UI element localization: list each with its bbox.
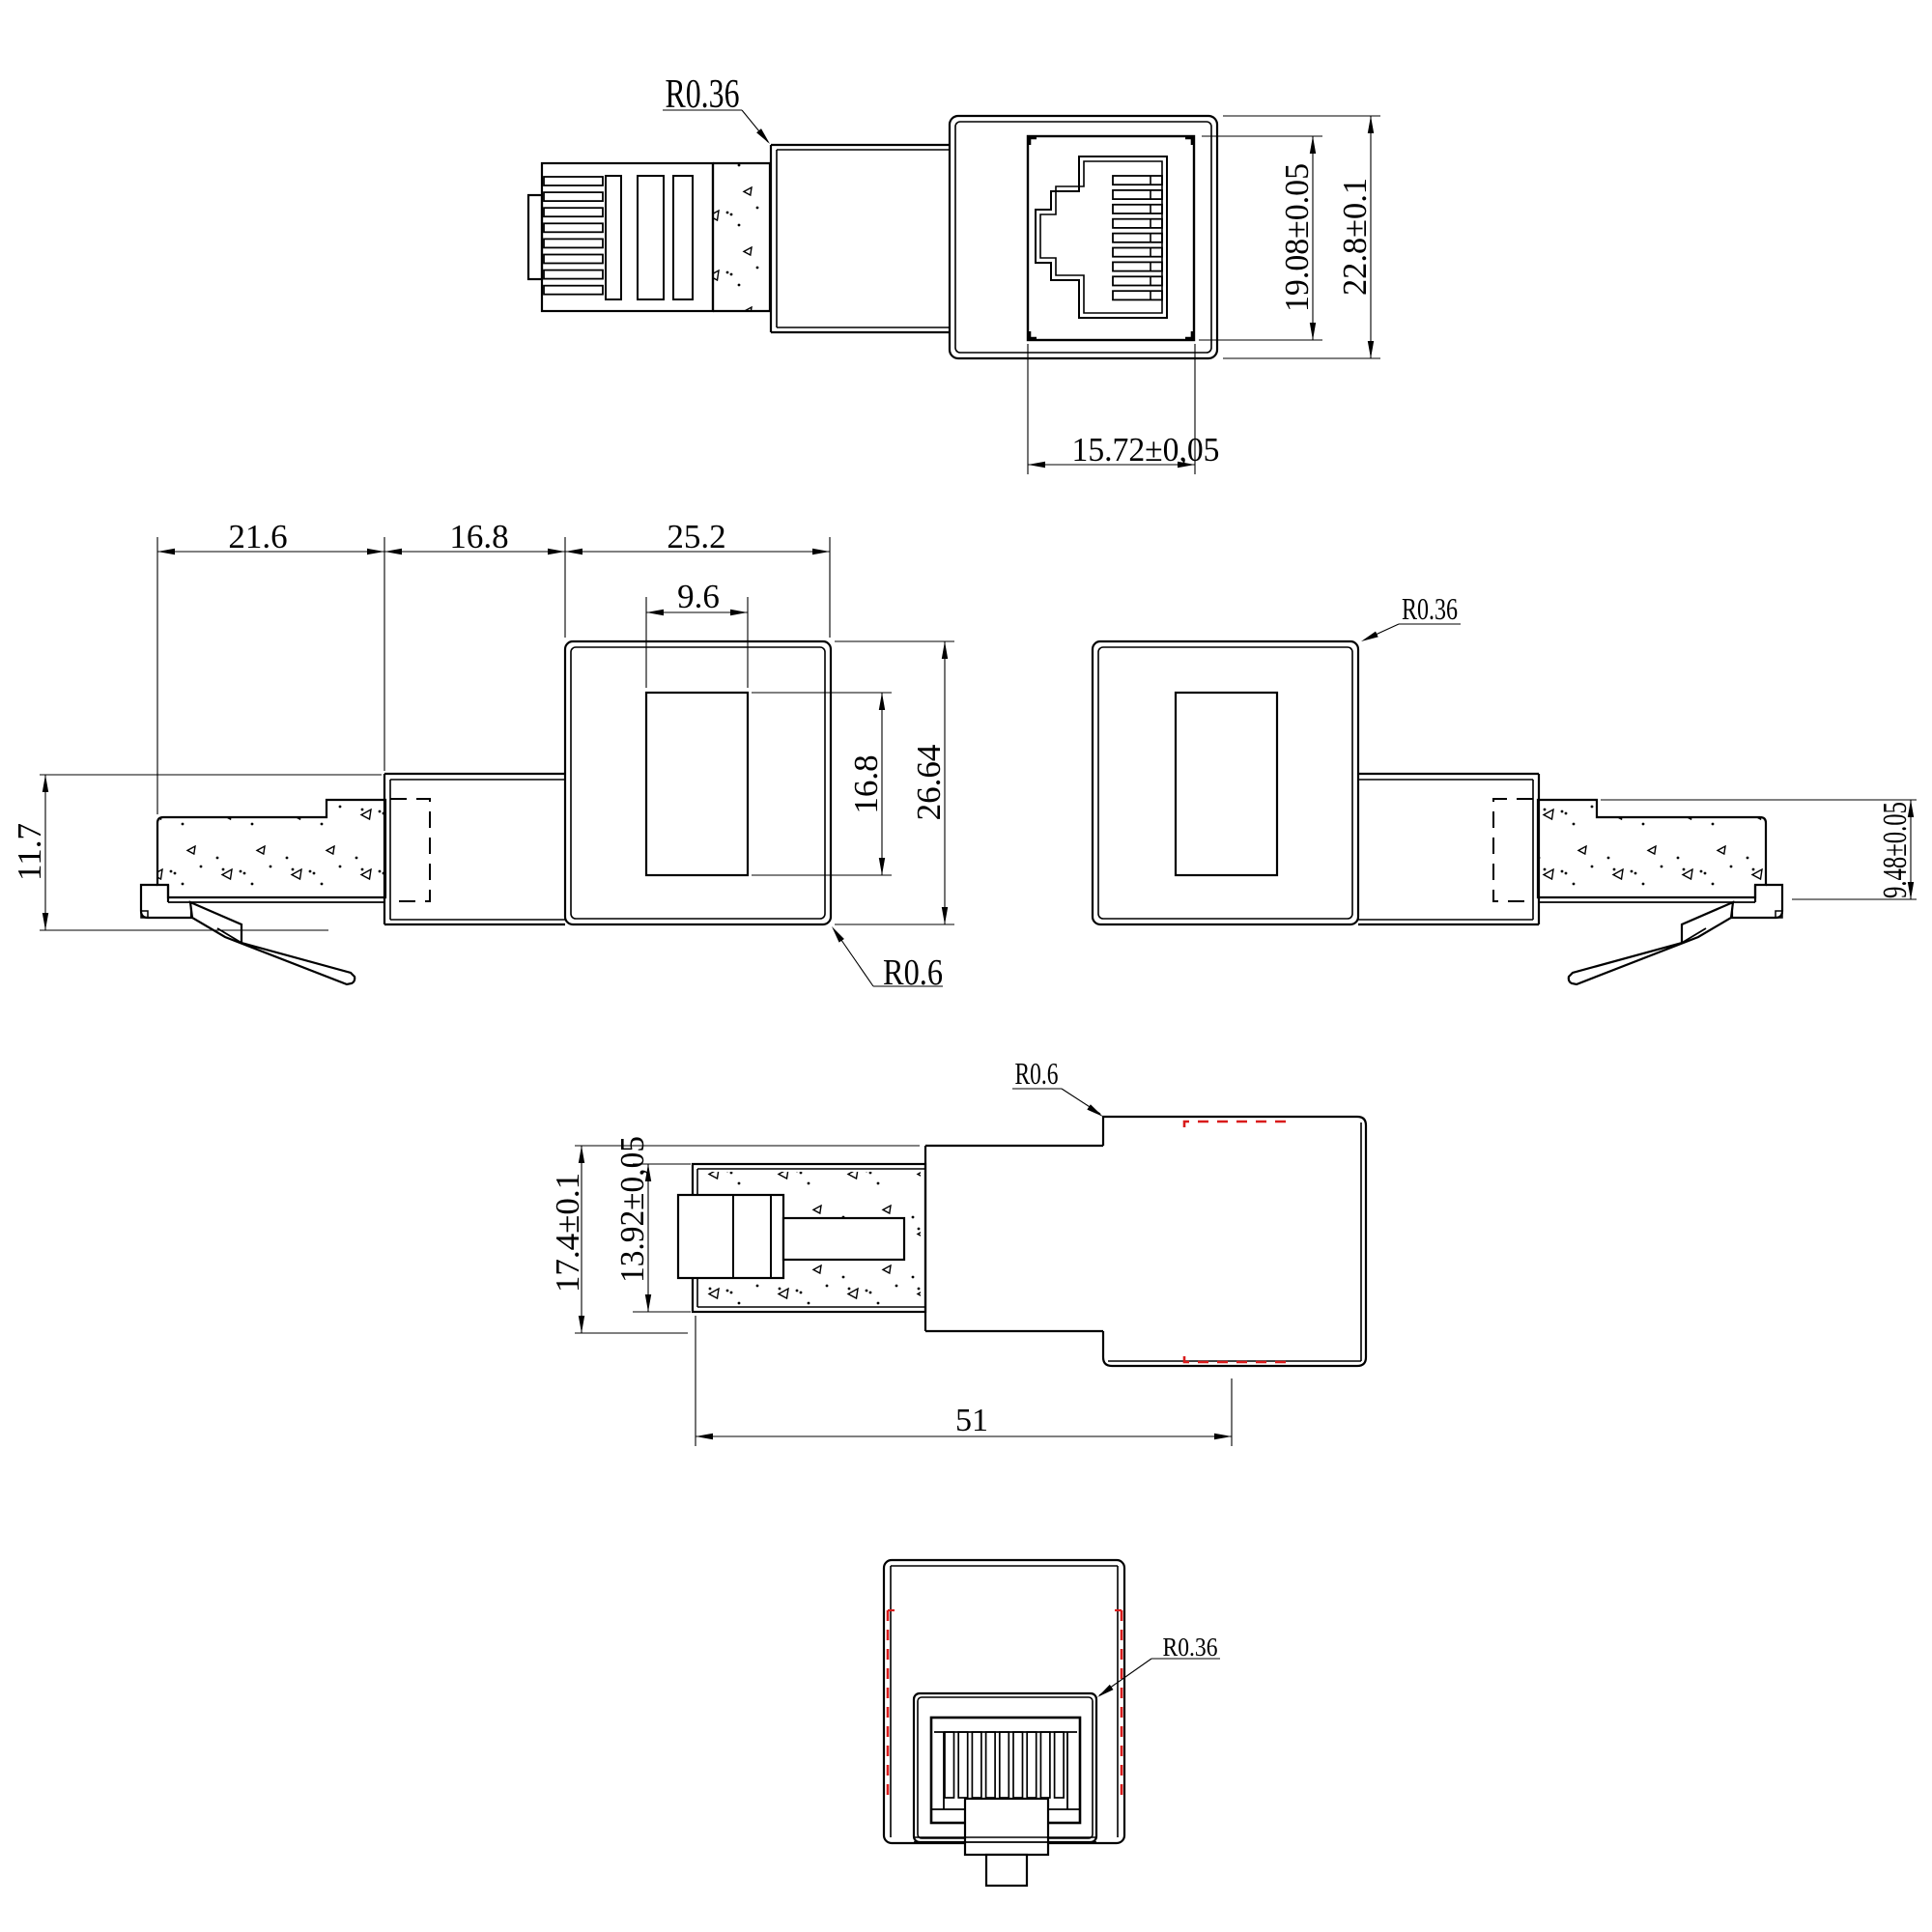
svg-text:19.08±0.05: 19.08±0.05: [1278, 163, 1316, 312]
svg-text:9.6: 9.6: [677, 578, 720, 615]
svg-text:13.92±0,05: 13.92±0,05: [613, 1136, 651, 1283]
svg-text:21.6: 21.6: [228, 518, 287, 555]
svg-text:17.4±0.1: 17.4±0.1: [549, 1173, 586, 1293]
svg-text:9.48±0.05: 9.48±0.05: [1876, 802, 1914, 898]
svg-text:R0.36: R0.36: [1163, 1633, 1218, 1662]
svg-text:22.8±0.1: 22.8±0.1: [1336, 178, 1374, 296]
svg-text:16.8: 16.8: [847, 754, 885, 813]
svg-text:15.72±0,05: 15.72±0,05: [1072, 431, 1220, 469]
svg-text:16.8: 16.8: [449, 518, 508, 555]
svg-text:26.64: 26.64: [910, 745, 948, 821]
svg-text:25.2: 25.2: [667, 518, 725, 555]
svg-text:51: 51: [955, 1403, 988, 1438]
svg-text:R0.6: R0.6: [1015, 1056, 1059, 1091]
svg-text:11.7: 11.7: [11, 823, 48, 881]
svg-text:R0.6: R0.6: [883, 952, 943, 993]
svg-text:R0.36: R0.36: [1402, 591, 1458, 626]
